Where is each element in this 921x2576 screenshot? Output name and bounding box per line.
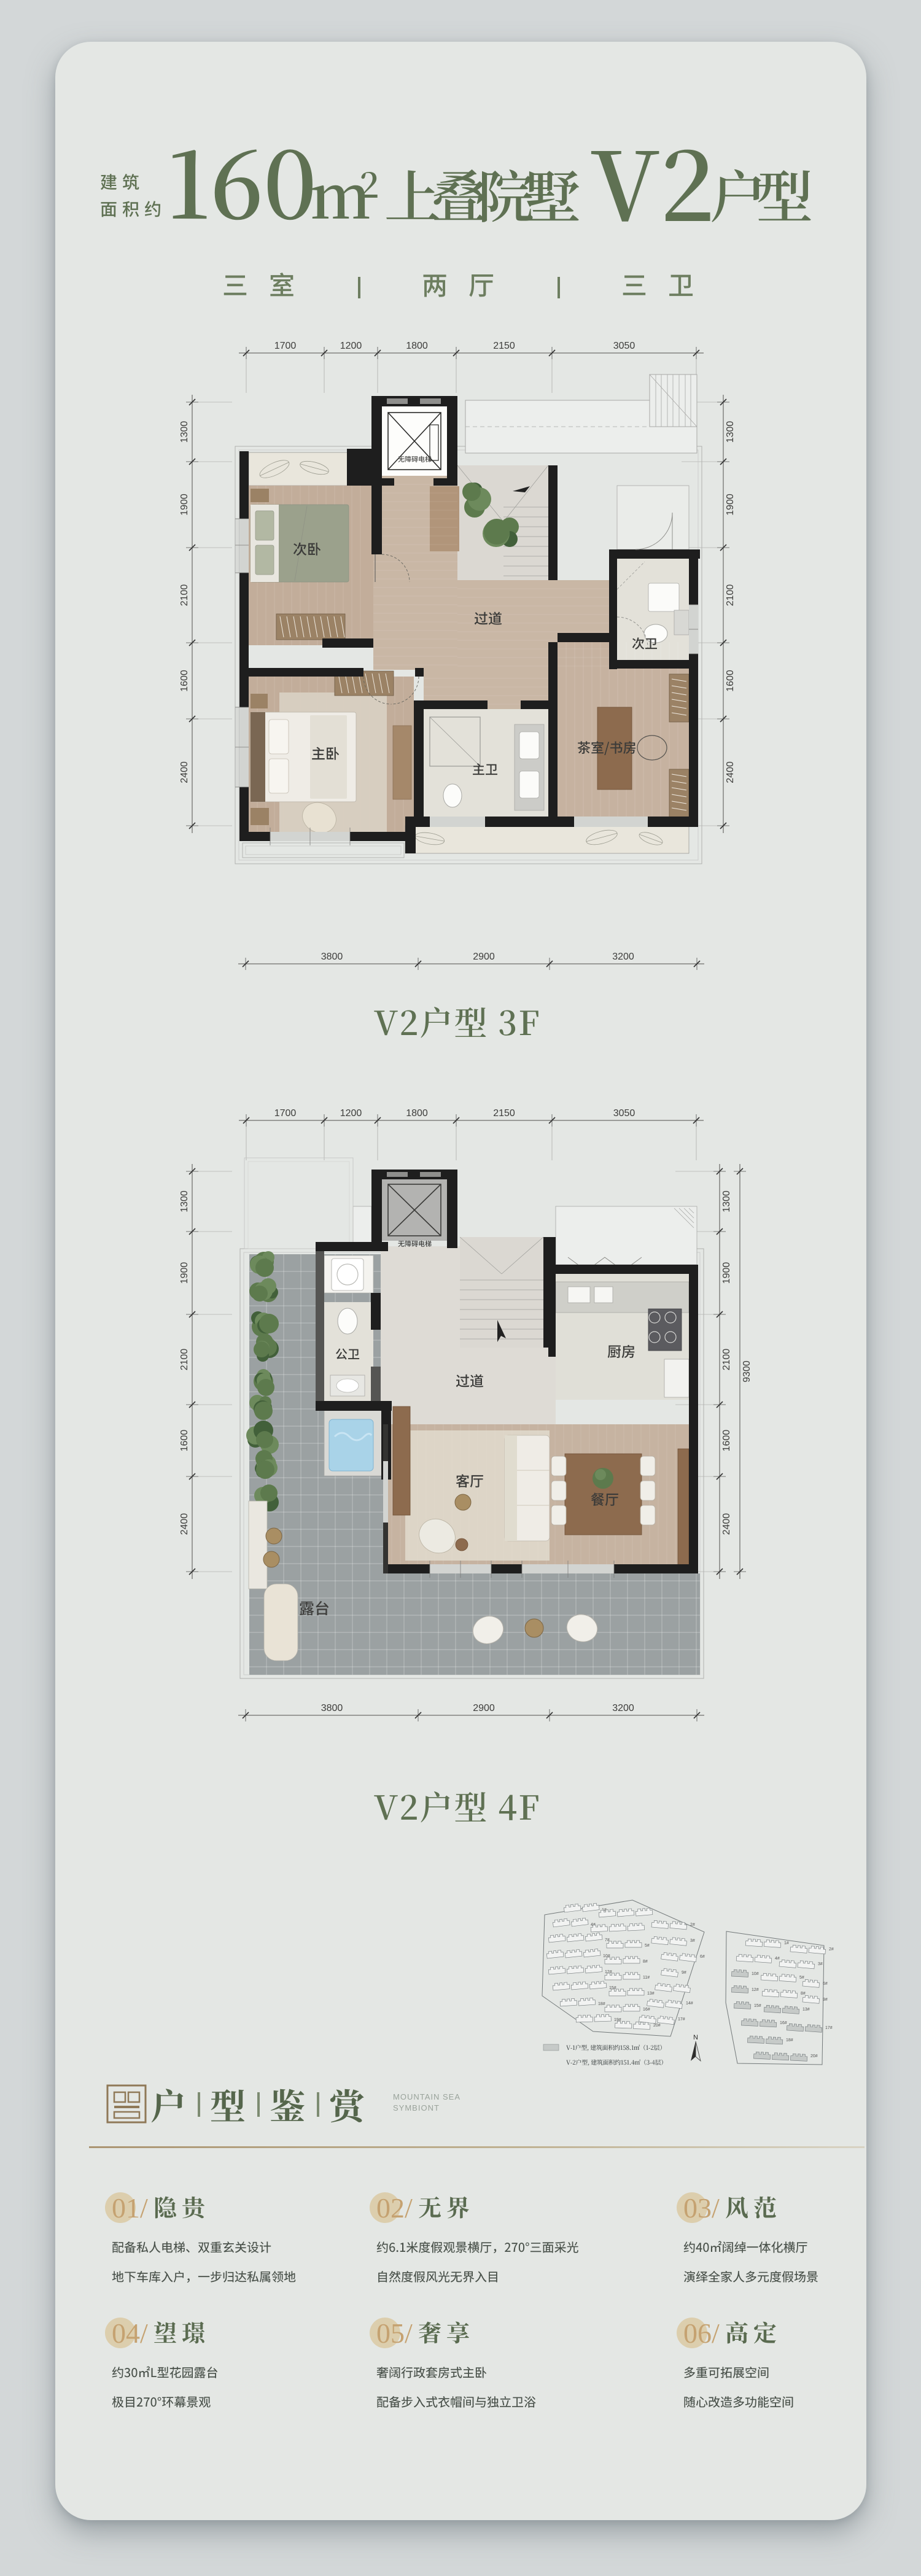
svg-text:N: N (693, 2034, 698, 2041)
svg-text:13#: 13# (647, 1992, 655, 1996)
svg-text:1#: 1# (784, 1941, 789, 1946)
svg-text:1900: 1900 (725, 494, 736, 516)
svg-text:3200: 3200 (612, 952, 634, 962)
svg-text:10#: 10# (752, 1972, 759, 1976)
svg-text:2400: 2400 (179, 1513, 190, 1535)
svg-text:2#: 2# (829, 1947, 834, 1952)
svg-text:8#: 8# (643, 1960, 648, 1964)
svg-text:17#: 17# (825, 2026, 833, 2030)
svg-text:3050: 3050 (613, 341, 635, 351)
svg-text:1600: 1600 (179, 1430, 190, 1452)
svg-text:12#: 12# (752, 1988, 759, 1992)
svg-text:8#: 8# (801, 1992, 806, 1996)
svg-text:2#: 2# (690, 1923, 695, 1927)
svg-text:15#: 15# (754, 2004, 761, 2008)
svg-text:16#: 16# (643, 2008, 650, 2012)
svg-text:1600: 1600 (721, 1430, 732, 1452)
svg-text:4#: 4# (775, 1957, 780, 1961)
svg-text:17#: 17# (678, 2017, 685, 2022)
svg-text:3#: 3# (690, 1939, 695, 1943)
svg-text:2400: 2400 (721, 1513, 732, 1535)
svg-text:04/: 04/ (112, 2318, 148, 2349)
svg-text:1200: 1200 (340, 1108, 362, 1119)
svg-text:2400: 2400 (725, 761, 736, 783)
svg-text:2900: 2900 (473, 1703, 495, 1713)
svg-text:01/: 01/ (112, 2192, 148, 2224)
svg-text:MOUNTAIN SEA: MOUNTAIN SEA (393, 2092, 460, 2101)
svg-text:SYMBIONT: SYMBIONT (393, 2103, 440, 2112)
svg-text:6#: 6# (700, 1955, 705, 1959)
svg-text:02/: 02/ (376, 2192, 413, 2224)
svg-text:5#: 5# (799, 1976, 804, 1980)
svg-text:13#: 13# (802, 2008, 810, 2012)
svg-text:11#: 11# (643, 1976, 650, 1980)
svg-text:2100: 2100 (179, 584, 190, 607)
svg-text:3050: 3050 (613, 1108, 635, 1119)
svg-text:2900: 2900 (473, 952, 495, 962)
svg-text:1700: 1700 (274, 1108, 297, 1119)
svg-text:18#: 18# (598, 2002, 605, 2006)
svg-text:9#: 9# (682, 1971, 686, 1975)
svg-text:1900: 1900 (179, 1262, 190, 1284)
svg-text:6#: 6# (823, 1982, 828, 1986)
svg-text:1800: 1800 (406, 341, 428, 351)
svg-text:20#: 20# (653, 2023, 661, 2028)
svg-text:9300: 9300 (742, 1360, 752, 1383)
svg-text:1900: 1900 (721, 1262, 732, 1284)
svg-text:1600: 1600 (179, 670, 190, 692)
svg-text:2400: 2400 (179, 761, 190, 783)
svg-text:3800: 3800 (321, 1703, 343, 1713)
svg-text:1900: 1900 (179, 494, 190, 516)
svg-text:1300: 1300 (179, 421, 190, 443)
svg-text:3200: 3200 (612, 1703, 634, 1713)
svg-text:2150: 2150 (493, 341, 515, 351)
svg-text:1200: 1200 (340, 341, 362, 351)
svg-text:2150: 2150 (493, 1108, 515, 1119)
svg-text:14#: 14# (686, 2001, 693, 2006)
svg-text:2100: 2100 (179, 1349, 190, 1371)
svg-text:06/: 06/ (683, 2318, 720, 2349)
svg-text:05/: 05/ (376, 2318, 413, 2349)
svg-text:5#: 5# (645, 1944, 650, 1948)
svg-text:20#: 20# (810, 2054, 818, 2058)
svg-text:3800: 3800 (321, 952, 343, 962)
svg-text:3#: 3# (818, 1962, 823, 1966)
svg-text:1300: 1300 (721, 1190, 732, 1212)
svg-text:2100: 2100 (721, 1349, 732, 1371)
svg-text:18#: 18# (786, 2038, 793, 2043)
svg-text:03/: 03/ (683, 2192, 720, 2224)
svg-text:1300: 1300 (179, 1190, 190, 1212)
svg-text:1600: 1600 (725, 670, 736, 692)
svg-text:1700: 1700 (274, 341, 297, 351)
svg-text:1300: 1300 (725, 421, 736, 443)
svg-text:9#: 9# (823, 1998, 828, 2002)
svg-text:2100: 2100 (725, 584, 736, 607)
svg-text:1800: 1800 (406, 1108, 428, 1119)
svg-text:16#: 16# (780, 2021, 787, 2025)
